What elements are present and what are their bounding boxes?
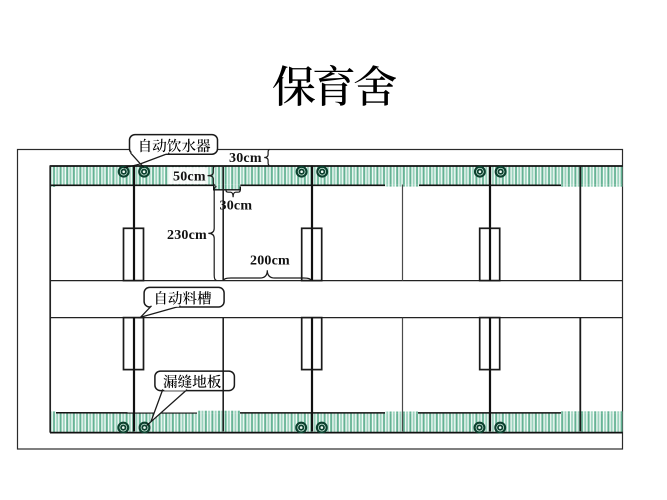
svg-text:230cm: 230cm [167, 228, 207, 243]
svg-text:30cm: 30cm [220, 198, 253, 213]
svg-text:50cm: 50cm [173, 169, 206, 184]
svg-text:30cm: 30cm [229, 151, 262, 166]
svg-text:200cm: 200cm [250, 254, 290, 269]
